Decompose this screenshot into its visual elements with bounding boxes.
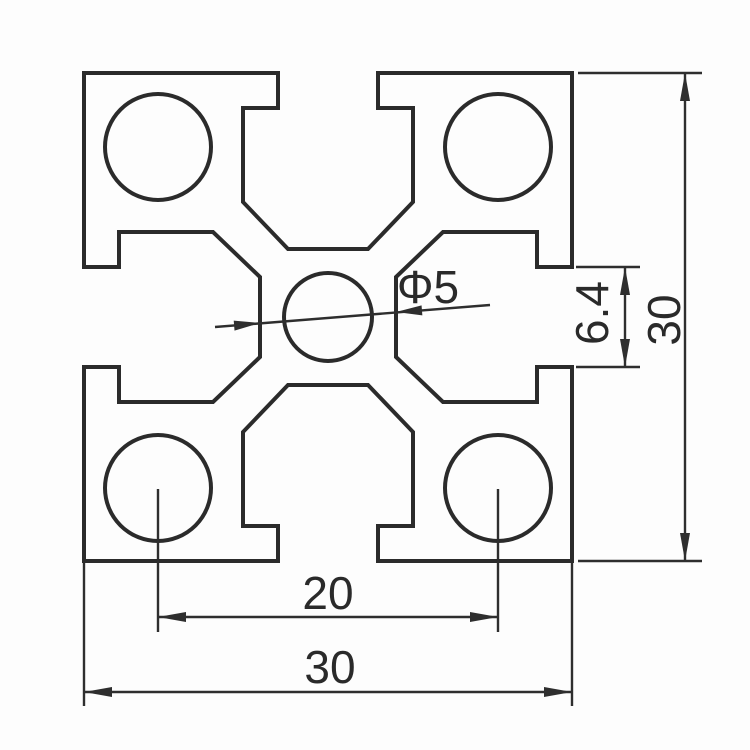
t-slot-top [243,73,413,249]
profile-corner-top-left [84,73,278,267]
profile-corner-bottom-right [378,367,572,561]
dim-label-slot-opening: 6.4 [566,281,618,345]
profile-corner-bottom-left [84,367,278,561]
t-slot-left [84,232,260,402]
arrowhead-down-icon [680,533,690,561]
arrowhead-right-icon [470,612,498,622]
drawing-canvas: 20 30 30 6.4 Φ5 [0,0,750,750]
t-slot-right [396,232,572,402]
drawing-page: 20 30 30 6.4 Φ5 [0,0,750,750]
dim-label-bore-spacing: 20 [302,567,353,619]
dim-label-overall-height: 30 [638,294,690,345]
arrowhead-left-icon [158,612,186,622]
corner-bore-circle-top-right [445,94,551,200]
dimension-slot-opening: 6.4 [566,267,640,367]
dim-label-overall-width: 30 [304,641,355,693]
arrowhead-right-icon [544,687,572,697]
profile-corner-top-right [378,73,572,267]
dim-label-center-bore: Φ5 [397,261,459,313]
arrowhead-left-icon [84,687,112,697]
arrowhead-up-icon [620,267,630,295]
arrowhead-down-icon [620,339,630,367]
t-slot-bottom [243,385,413,561]
arrowhead-up-icon [680,73,690,101]
corner-bore-circle-top-left [105,94,211,200]
